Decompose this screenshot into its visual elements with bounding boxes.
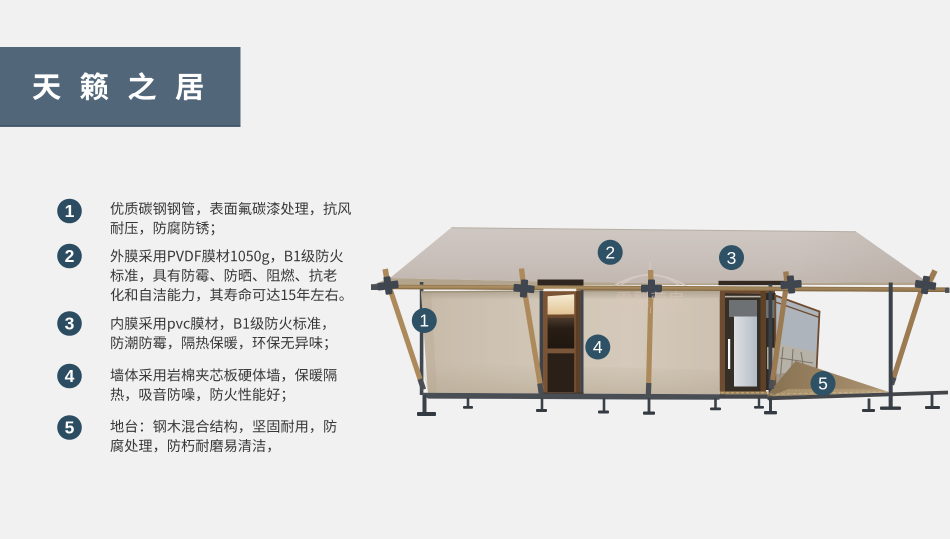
svg-text:XUELITENT: XUELITENT: [622, 306, 681, 315]
svg-text:2: 2: [65, 246, 75, 266]
svg-text:4: 4: [65, 366, 75, 386]
svg-text:2: 2: [605, 243, 615, 263]
svg-text:1: 1: [419, 311, 429, 331]
svg-text:5: 5: [818, 374, 828, 394]
svg-text:4: 4: [593, 337, 603, 357]
svg-text:3: 3: [65, 314, 75, 334]
svg-text:5: 5: [65, 418, 75, 438]
svg-text:1: 1: [65, 201, 75, 221]
svg-text:3: 3: [727, 248, 737, 268]
